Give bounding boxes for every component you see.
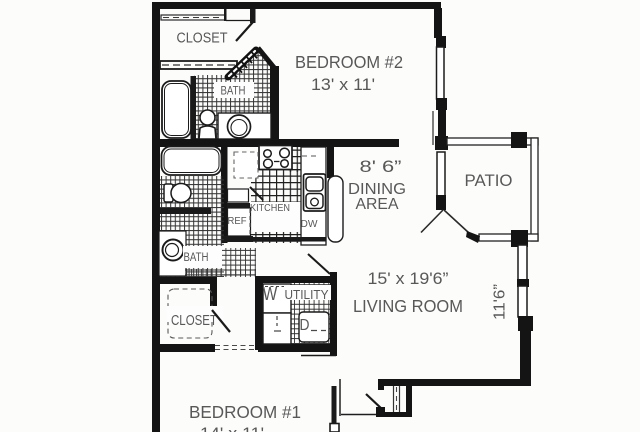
svg-text:15' x 19'6”: 15' x 19'6” <box>368 270 449 288</box>
svg-text:AREA: AREA <box>356 196 399 213</box>
svg-text:8' 6”: 8' 6” <box>360 158 402 176</box>
svg-text:CLOSET: CLOSET <box>177 31 228 47</box>
svg-text:KITCHEN: KITCHEN <box>250 202 290 214</box>
svg-text:D: D <box>300 317 310 334</box>
svg-text:W: W <box>263 284 278 304</box>
svg-text:CLOSET: CLOSET <box>171 313 217 329</box>
svg-text:BEDROOM #1: BEDROOM #1 <box>189 402 301 422</box>
svg-text:14' x 11': 14' x 11' <box>200 424 264 432</box>
svg-text:11'6”: 11'6” <box>492 284 509 320</box>
svg-text:BEDROOM #2: BEDROOM #2 <box>295 52 403 72</box>
svg-text:UTILITY: UTILITY <box>285 287 329 302</box>
svg-text:DW: DW <box>301 218 318 230</box>
svg-text:REF: REF <box>228 215 247 227</box>
svg-text:13' x 11': 13' x 11' <box>311 76 375 94</box>
svg-text:PATIO: PATIO <box>465 172 513 190</box>
svg-text:BATH: BATH <box>221 86 246 98</box>
svg-text:BATH: BATH <box>184 252 209 264</box>
svg-text:LIVING ROOM: LIVING ROOM <box>353 296 463 316</box>
